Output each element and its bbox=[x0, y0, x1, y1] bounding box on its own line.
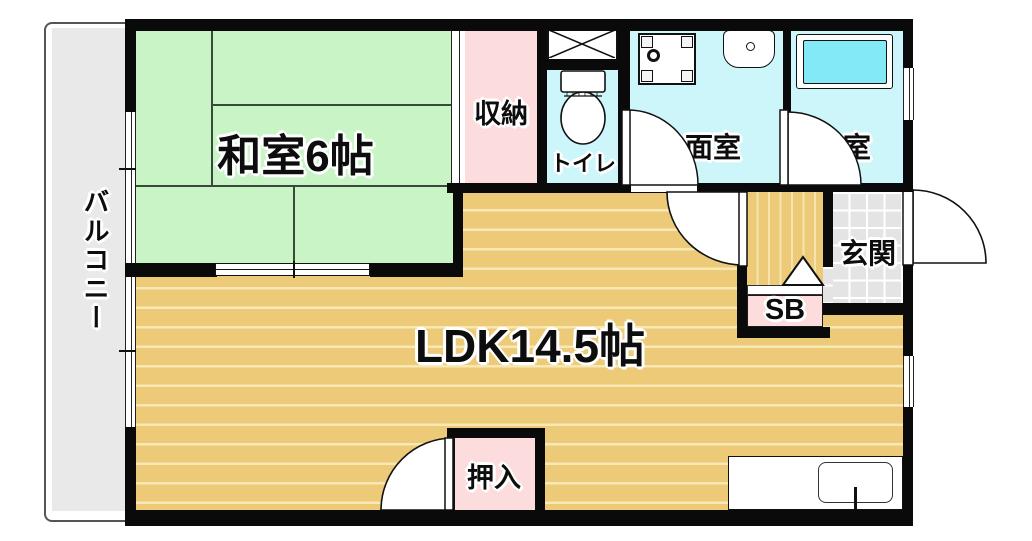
window-center-tick bbox=[119, 168, 136, 170]
entrance-door-arc bbox=[913, 190, 986, 263]
outer-wall-right bbox=[903, 407, 913, 515]
step-triangle-marker bbox=[783, 257, 823, 285]
ldk-hall-door-leaf bbox=[739, 192, 747, 266]
entrance-door-leaf bbox=[903, 190, 913, 265]
oshiire-door-leaf bbox=[445, 438, 453, 510]
outer-wall-left bbox=[125, 19, 136, 112]
window bbox=[903, 68, 914, 120]
ldk-hall-door-arc bbox=[667, 192, 743, 265]
outer-wall-bottom bbox=[125, 510, 913, 526]
washroom-door-arc bbox=[628, 110, 698, 185]
window-center-tick bbox=[119, 350, 136, 352]
window bbox=[125, 277, 136, 427]
outer-wall-top bbox=[125, 19, 913, 31]
floor-plan: バルコニー 和室6帖 収納 トイレ bbox=[0, 0, 1032, 541]
outer-wall-left bbox=[125, 427, 136, 515]
oshiire-door-arc bbox=[381, 438, 453, 510]
door-arcs-overlay bbox=[0, 0, 1032, 541]
window bbox=[125, 112, 136, 263]
outer-wall-left bbox=[125, 263, 136, 277]
outer-wall-right bbox=[903, 265, 913, 356]
outer-wall-right bbox=[903, 19, 913, 68]
outer-wall-right bbox=[903, 120, 913, 192]
washroom-door-leaf bbox=[622, 110, 630, 185]
bathroom-door-arc bbox=[788, 112, 861, 185]
bathroom-door-leaf bbox=[780, 110, 788, 185]
window bbox=[903, 356, 914, 407]
